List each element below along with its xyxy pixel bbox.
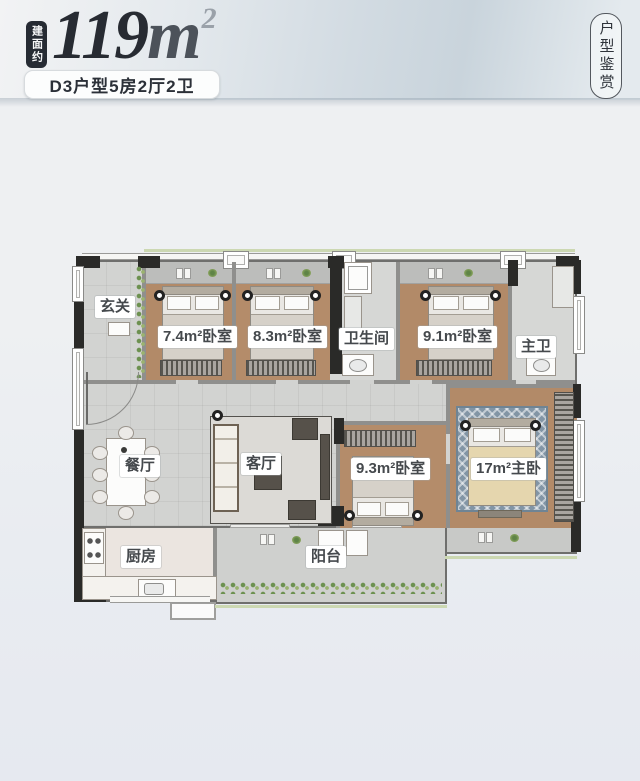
bedside-lamp-icon (530, 420, 541, 431)
label-bedroom-91: 9.1m²卧室 (418, 326, 497, 348)
wall-segment (232, 262, 236, 380)
bed-headboard (429, 287, 493, 295)
bed-pillow (357, 502, 382, 516)
bed-icon (162, 286, 224, 360)
bed-pillow (504, 428, 531, 442)
bed-headboard (163, 287, 223, 295)
corner-tag: 户型鉴赏 (590, 13, 622, 99)
bed-pillow (463, 296, 489, 310)
label-master-bath: 主卫 (516, 336, 556, 358)
label-bathroom: 卫生间 (339, 328, 394, 350)
page-title: 119m2 (52, 0, 215, 78)
plant-icon (302, 269, 311, 277)
bed-pillow (284, 296, 310, 310)
bed-icon (428, 286, 494, 360)
wardrobe-icon (246, 360, 316, 376)
window-frame (72, 266, 84, 302)
door-opening (276, 380, 298, 384)
sink-basin (144, 583, 164, 595)
window-frame (223, 251, 249, 269)
wardrobe-icon (160, 360, 222, 376)
sink-basin (349, 359, 367, 372)
slippers-icon (266, 268, 273, 279)
wall-segment (334, 418, 344, 444)
slippers-icon (184, 268, 191, 279)
armchair-icon (288, 500, 316, 520)
area-badge: 建面约 (26, 21, 47, 68)
corner-tag-text: 户型鉴赏 (596, 20, 617, 92)
sofa-icon (213, 424, 239, 512)
bed-pillow (433, 296, 459, 310)
sliding-door (230, 524, 290, 528)
stove-icon (84, 532, 104, 564)
chair-icon (144, 490, 160, 504)
console-table-icon (108, 322, 130, 336)
baywindow-planter-line (445, 556, 577, 559)
bedside-lamp-icon (490, 290, 501, 301)
label-balcony: 阳台 (306, 546, 346, 568)
label-bedroom-83: 8.3m²卧室 (248, 326, 327, 348)
bedside-lamp-icon (460, 420, 471, 431)
bed-pillow (195, 296, 220, 310)
slippers-icon (176, 268, 183, 279)
wall-segment (74, 300, 84, 348)
wardrobe-icon (344, 430, 416, 447)
bedside-lamp-icon (242, 290, 253, 301)
label-dining: 餐厅 (120, 455, 160, 477)
label-bedroom-93: 9.3m²卧室 (351, 458, 430, 480)
plant-icon (292, 536, 301, 544)
entry-plants-icon (136, 266, 146, 378)
door-opening (350, 380, 374, 384)
plant-icon (510, 534, 519, 542)
bathroom-sink-icon (342, 354, 374, 376)
wall-segment (446, 384, 577, 388)
slippers-icon (436, 268, 443, 279)
bed-bench-icon (478, 510, 522, 518)
area-number: 119 (52, 0, 147, 74)
bedside-lamp-icon (412, 510, 423, 521)
area-unit: m (147, 0, 199, 74)
bedside-lamp-icon (420, 290, 431, 301)
plant-icon (208, 269, 217, 277)
bed-headboard (469, 419, 535, 427)
wall-segment (396, 262, 400, 380)
tv-cabinet-icon (320, 434, 330, 500)
wall-segment (573, 260, 581, 294)
wall-segment (508, 260, 518, 286)
slippers-icon (268, 534, 275, 545)
window-frame (573, 420, 585, 502)
bed-icon (250, 286, 314, 360)
door-opening (446, 434, 450, 464)
wall-segment (573, 384, 581, 418)
label-living: 客厅 (241, 453, 281, 475)
slippers-icon (486, 532, 493, 543)
chair-icon (118, 506, 134, 520)
bedside-lamp-icon (310, 290, 321, 301)
floor-lamp-icon (212, 410, 223, 421)
window-frame (72, 348, 84, 430)
bed-pillow (167, 296, 192, 310)
balcony-planter-line (215, 605, 447, 608)
header-divider-shadow (0, 98, 640, 107)
label-master-bedroom: 17m²主卧 (471, 458, 546, 480)
bedside-lamp-icon (344, 510, 355, 521)
armchair-icon (292, 418, 318, 440)
bed-headboard (353, 517, 413, 525)
chair-icon (118, 426, 134, 440)
wardrobe-icon (416, 360, 492, 376)
wall-segment (336, 421, 448, 425)
balcony-plants-icon (220, 582, 442, 594)
area-badge-label: 建面约 (29, 25, 45, 64)
bedside-lamp-icon (220, 290, 231, 301)
slippers-icon (478, 532, 485, 543)
label-entry: 玄关 (95, 296, 135, 318)
laundry-sink-icon (346, 530, 368, 556)
bed-headboard (251, 287, 313, 295)
bedside-lamp-icon (154, 290, 165, 301)
wall-segment (330, 262, 342, 374)
shower-icon (552, 266, 574, 308)
chair-icon (92, 490, 108, 504)
table-vase-icon (121, 447, 127, 453)
slippers-icon (274, 268, 281, 279)
label-kitchen: 厨房 (121, 546, 161, 568)
bed-pillow (255, 296, 281, 310)
bed-pillow (473, 428, 500, 442)
plan-flue-protrusion (170, 602, 216, 620)
label-bedroom-74: 7.4m²卧室 (158, 326, 237, 348)
entry-door-leaf (86, 372, 88, 424)
unit-type-banner: D3户型5房2厅2卫 (24, 70, 220, 99)
door-opening (176, 380, 198, 384)
window-frame (573, 296, 585, 354)
slippers-icon (260, 534, 267, 545)
shaft-icon (344, 262, 372, 294)
window-frame (110, 596, 210, 603)
floor-plan: 玄关 7.4m²卧室 8.3m²卧室 卫生间 9.1m²卧室 主卫 餐厅 客厅 … (80, 260, 577, 608)
door-opening (410, 380, 432, 384)
sink-basin (533, 359, 550, 372)
baywindow-strip (398, 262, 510, 284)
chair-icon (92, 468, 108, 482)
wardrobe-icon (554, 392, 574, 522)
slippers-icon (428, 268, 435, 279)
chair-icon (92, 446, 108, 460)
bed-pillow (385, 502, 410, 516)
plant-icon (464, 269, 473, 277)
unit-type-text: D3户型5房2厅2卫 (49, 72, 194, 97)
area-superscript: 2 (202, 2, 215, 35)
